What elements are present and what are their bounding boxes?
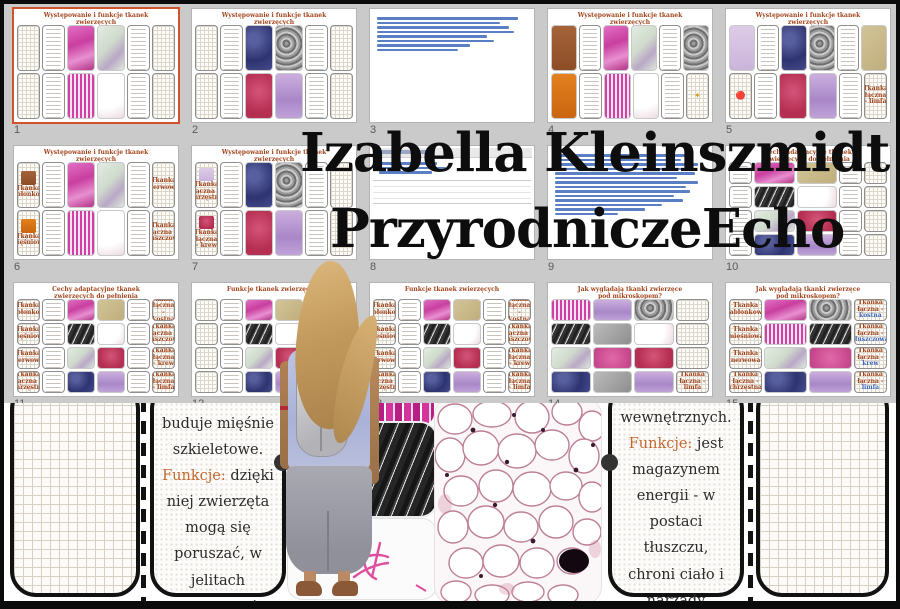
tissue-label: Tkanka łączna - limfa: [152, 372, 175, 392]
tissue-label-card: Tkanka nabłonkowa: [17, 162, 40, 208]
slide-thumbnail-14[interactable]: Jak wyglądają tkanki zwierzęce pod mikro…: [548, 283, 712, 396]
tissue-image-darkStriated: [551, 323, 591, 345]
tissue-image-blueCells: [245, 25, 273, 71]
tissue-image-adipose: [634, 323, 674, 345]
tissue-label-card: Tkanka łączna - chrzęstna: [729, 371, 762, 393]
hyperlink-line[interactable]: [555, 195, 674, 198]
tissue-label: Tkanka łączna - tłuszczowa: [508, 324, 531, 344]
slide-number: 10: [726, 261, 738, 273]
slide-thumbnail-15[interactable]: Jak wyglądają tkanki zwierzęce pod mikro…: [726, 283, 890, 396]
tissue-image-blood: [97, 347, 125, 369]
hyperlink-list: [373, 12, 531, 56]
text-card: [220, 73, 243, 119]
slide-title: Występowanie i funkcje tkanek zwierzęcyc…: [17, 12, 175, 25]
text-card: [220, 299, 243, 321]
tissue-image-paleNerve: [97, 162, 125, 208]
tissue-label: Tkanka łączna - krew: [855, 348, 886, 368]
hyperlink-line[interactable]: [377, 40, 494, 43]
tissue-image-blueCells: [67, 371, 95, 393]
hyperlink-line[interactable]: [555, 190, 690, 193]
tissue-image-adipose: [453, 323, 481, 345]
tissue-label: Tkanka łączna - krew: [508, 348, 531, 368]
slide-thumbnail-11[interactable]: Cechy adaptacyjne tkanek zwierzęcych do …: [14, 283, 178, 396]
grid-card: [17, 73, 40, 119]
text-card: [398, 371, 421, 393]
slide-thumbnail-2[interactable]: Występowanie i funkcje tkanek zwierzęcyc…: [192, 9, 356, 122]
tissue-label-card: Tkanka łączna - tłuszczowa: [854, 323, 887, 345]
tissue-label: Tkanka nerwowa: [152, 178, 175, 191]
tissue-image-darkStriated: [67, 323, 95, 345]
text-card: [42, 371, 65, 393]
tissue-image-pinkField: [593, 347, 633, 369]
tissue-label-card: Tkanka mięśniowa: [17, 210, 40, 256]
tissue-image-paleNerve: [423, 347, 451, 369]
tissue-image-tan: [861, 25, 887, 71]
grid-card-right: [756, 403, 889, 597]
tissue-image-graySpeck: [809, 25, 835, 71]
tissue-label-card: Tkanka nerwowa: [152, 162, 175, 208]
text-card-adipose: wewnętrznych. Funkcje: jest magazynem en…: [608, 403, 744, 597]
tissue-image-purpleEp: [97, 371, 125, 393]
text-card: [483, 323, 506, 345]
tissue-image-blood: [245, 73, 273, 119]
tissue-image-darkStriated: [423, 323, 451, 345]
slide-thumbnail-13[interactable]: Funkcje tkanek zwierzęcychTkanka nabłonk…: [370, 283, 534, 396]
text-card: [220, 162, 243, 208]
slide-title: Występowanie i funkcje tkanek zwierzęcyc…: [729, 12, 887, 25]
tissue-chip-brown: [21, 171, 36, 184]
hyperlink-line[interactable]: [377, 35, 487, 38]
text-card-muscle: buduje mięśnie szkieletowe. Funkcje: dzi…: [150, 403, 286, 597]
tissue-label-card: Tkanka mięśniowa: [17, 323, 40, 345]
tissue-label-card: Tkanka łączna - limfa: [864, 73, 887, 119]
text-card: [579, 73, 602, 119]
tissue-image-grayImg: [593, 323, 633, 345]
tissue-label-card: Tkanka nabłonkowa: [17, 299, 40, 321]
grid-card: [152, 73, 175, 119]
tissue-image-blueCells: [245, 371, 273, 393]
text-card: [127, 347, 150, 369]
tissue-label-card: Tkanka łączna - chrzęstna: [195, 162, 218, 208]
tissue-image-paleNerve: [67, 347, 95, 369]
text-card: [659, 25, 682, 71]
tissue-label-card: Tkanka łączna - limfa: [508, 371, 531, 393]
tissue-image-stripes: [551, 299, 591, 321]
tissue-label-card: Tkanka łączna - krew: [195, 210, 218, 256]
tissue-image-pinkMuscle: [245, 299, 273, 321]
tissue-image-graySpeck: [809, 299, 852, 321]
grid-card: [152, 25, 175, 71]
tissue-label-card: Tkanka łączna - tłuszczowa: [152, 323, 175, 345]
grid-card: [676, 323, 709, 345]
grid-card: [195, 347, 218, 369]
tissue-image-purpleEp: [809, 73, 837, 119]
adipose-tissue-micrograph: [435, 403, 601, 601]
tissue-label: Tkanka łączna - chrzęstna: [17, 372, 40, 392]
tissue-label-card: Tkanka łączna - kostna: [152, 299, 175, 321]
text-card: [398, 347, 421, 369]
text-card: [483, 371, 506, 393]
tissue-image-purpleEp: [809, 371, 852, 393]
text-card: [483, 347, 506, 369]
tissue-label: Tkanka łączna - krew: [195, 230, 218, 250]
grid-card: [864, 210, 887, 232]
tissue-image-blueCells: [551, 371, 591, 393]
text-card: [127, 210, 150, 256]
tissue-label: Tkanka łączna - tłuszczowa: [854, 324, 887, 344]
tissue-label: Tkanka mięśniowa: [729, 327, 762, 340]
hyperlink-line[interactable]: [377, 49, 458, 52]
slide-number: 1: [14, 124, 20, 136]
tissue-image-blood: [453, 347, 481, 369]
grid-card: [195, 299, 218, 321]
slide-number: 6: [14, 261, 20, 273]
tissue-image-brown: [551, 25, 577, 71]
person-pants: [286, 466, 372, 574]
tissue-image-graySpeck: [275, 25, 303, 71]
tissue-image-adipose: [97, 210, 125, 256]
text-card: [127, 323, 150, 345]
tissue-image-paleNerve: [764, 347, 807, 369]
tissue-image-purpleEp: [275, 73, 303, 119]
tissue-image-grayImg: [593, 371, 633, 393]
adipose-function-text: wewnętrznych. Funkcje: jest magazynem en…: [612, 403, 740, 601]
tissue-image-purpleEp: [593, 299, 633, 321]
tissue-label: Tkanka łączna - tłuszczowa: [152, 223, 175, 243]
slide-number: 9: [548, 261, 554, 273]
grid-card: [676, 347, 709, 369]
grid-card: [195, 25, 218, 71]
tissue-label-card: Tkanka łączna - krew: [854, 347, 887, 369]
tissue-image-paleNerve: [551, 347, 591, 369]
tissue-image-violetPale: [729, 25, 755, 71]
person-photo: [280, 261, 379, 603]
cut-line-right: [748, 403, 753, 601]
tissue-label: Tkanka łączna - limfa: [855, 372, 886, 392]
tissue-image-pinkMuscle: [67, 162, 95, 208]
tissue-image-blood: [634, 347, 674, 369]
tissue-label: Tkanka łączna - kostna: [152, 299, 175, 321]
text-card: [127, 371, 150, 393]
tissue-image-stripes: [67, 210, 95, 256]
slide-title: Występowanie i funkcje tkanek zwierzęcyc…: [195, 12, 353, 25]
text-card: [42, 210, 65, 256]
tissue-image-pinkField: [809, 347, 852, 369]
slide-thumbnail-4[interactable]: Występowanie i funkcje tkanek zwierzęcyc…: [548, 9, 712, 122]
slide-title: Występowanie i funkcje tkanek zwierzęcyc…: [551, 12, 709, 25]
tissue-label-card: Tkanka łączna - limfa: [854, 371, 887, 393]
text-card: [398, 323, 421, 345]
tissue-image-graySpeck: [634, 299, 674, 321]
grid-card: [17, 25, 40, 71]
slide-title: Jak wyglądają tkanki zwierzęce pod mikro…: [551, 286, 709, 299]
tissue-label-card: Tkanka łączna - limfa: [152, 371, 175, 393]
tissue-label: Tkanka łączna - tłuszczowa: [152, 324, 175, 344]
tissue-image-tan: [97, 299, 125, 321]
tissue-image-adipose: [97, 323, 125, 345]
tissue-label-card: Tkanka łączna - krew: [508, 347, 531, 369]
tissue-image-pinkMuscle: [764, 299, 807, 321]
tissue-image-blueCells: [764, 371, 807, 393]
text-card: [483, 299, 506, 321]
star-icon: ✦: [694, 92, 701, 100]
tissue-label-card: Tkanka łączna - kostna: [854, 299, 887, 321]
tissue-image-blood: [779, 73, 807, 119]
tissue-image-purpleEp: [275, 210, 303, 256]
tissue-label: Tkanka nabłonkowa: [729, 303, 762, 316]
text-card: [220, 323, 243, 345]
text-card: [305, 210, 328, 256]
text-card: [127, 25, 150, 71]
text-card: [305, 73, 328, 119]
slide-thumbnail-1[interactable]: Występowanie i funkcje tkanek zwierzęcyc…: [14, 9, 178, 122]
text-card: [661, 73, 684, 119]
tissue-image-stripes: [604, 73, 630, 119]
tissue-label: Tkanka nabłonkowa: [17, 186, 40, 199]
tissue-image-pinkMuscle: [603, 25, 629, 71]
tissue-label: Tkanka nabłonkowa: [17, 303, 40, 316]
hyperlink-line[interactable]: [377, 31, 514, 34]
tissue-label-card: Tkanka łączna - krew: [152, 347, 175, 369]
tissue-chip-blood: [199, 216, 214, 229]
tissue-image-orange: [551, 73, 577, 119]
text-card: [127, 299, 150, 321]
text-card: [42, 299, 65, 321]
tissue-label-card: Tkanka łączna - tłuszczowa: [152, 210, 175, 256]
tissue-image-darkStriated: [245, 323, 273, 345]
tissue-label: Tkanka łączna - chrzęstna: [195, 182, 218, 202]
text-card: [398, 299, 421, 321]
person-sandal: [296, 581, 322, 596]
tissue-label: Tkanka mięśniowa: [17, 234, 40, 247]
tissue-image-paleNerve: [97, 25, 125, 71]
tissue-label-card: Tkanka łączna - tłuszczowa: [508, 323, 531, 345]
text-card: [127, 73, 150, 119]
cut-line-left: [141, 403, 146, 601]
tissue-label: Tkanka łączna - limfa: [508, 372, 531, 392]
text-card: [757, 25, 780, 71]
collage-root: Występowanie i funkcje tkanek zwierzęcyc…: [0, 0, 900, 609]
watermark-title-line2: PrzyrodniczeEcho: [330, 203, 760, 256]
text-card: [42, 347, 65, 369]
text-card: [220, 210, 243, 256]
grid-card: [676, 299, 709, 321]
slide-title: Jak wyglądają tkanki zwierzęce pod mikro…: [729, 286, 887, 299]
tissue-label: Tkanka łączna - krew: [152, 348, 175, 368]
grid-card: [864, 234, 887, 256]
tissue-label-card: Tkanka łączna - limfa: [676, 371, 709, 393]
icon-card-star: ✦: [686, 73, 709, 119]
tissue-image-blood: [245, 210, 273, 256]
person-sandal: [332, 581, 358, 596]
slide-title: Cechy adaptacyjne tkanek zwierzęcych do …: [17, 286, 175, 299]
tissue-image-blueCells: [781, 25, 807, 71]
tissue-chip-orange: [21, 219, 36, 232]
tissue-label: Tkanka mięśniowa: [17, 327, 40, 340]
tissue-label: Tkanka nerwowa: [730, 351, 762, 364]
text-card: [127, 162, 150, 208]
hyperlink-line[interactable]: [377, 44, 470, 47]
tissue-label-card: Tkanka łączna - chrzęstna: [17, 371, 40, 393]
tissue-chip-violetPale: [199, 168, 214, 181]
text-card: [42, 25, 65, 71]
slide-detail-pane: buduje mięśnie szkieletowe. Funkcje: dzi…: [4, 403, 896, 601]
tissue-image-graySpeck: [683, 25, 709, 71]
grid-card: [330, 73, 353, 119]
hyperlink-line[interactable]: [377, 17, 518, 20]
tissue-image-stripes: [67, 73, 95, 119]
tissue-image-paleNerve: [631, 25, 657, 71]
tissue-image-darkStriated: [809, 323, 852, 345]
tissue-label-card: Tkanka mięśniowa: [729, 323, 762, 345]
tissue-label-card: Tkanka nabłonkowa: [729, 299, 762, 321]
text-card: [220, 25, 243, 71]
tissue-label-card: Tkanka nerwowa: [17, 347, 40, 369]
tissue-image-blueCells: [423, 371, 451, 393]
tissue-image-stripes: [764, 323, 807, 345]
tissue-label: Tkanka łączna - limfa: [864, 86, 887, 106]
tissue-label: Tkanka łączna - limfa: [677, 372, 708, 392]
tissue-image-purpleEp: [634, 371, 674, 393]
slide-number: 7: [192, 261, 198, 273]
tissue-label: Tkanka łączna - kostna: [855, 300, 886, 320]
hyperlink-line[interactable]: [377, 26, 509, 29]
grid-card: [195, 371, 218, 393]
slide-thumbnail-5[interactable]: Występowanie i funkcje tkanek zwierzęcyc…: [726, 9, 890, 122]
tissue-image-paleNerve: [245, 347, 273, 369]
hyperlink-line[interactable]: [377, 22, 500, 25]
grid-card: [864, 186, 887, 208]
grid-card: [330, 25, 353, 71]
grid-card-left: [10, 403, 140, 597]
tissue-label: Tkanka nerwowa: [17, 351, 40, 364]
hyperlink-line[interactable]: [555, 186, 686, 189]
slide-thumbnail-3[interactable]: [370, 9, 534, 122]
tissue-label-card: Tkanka łączna - kostna: [508, 299, 531, 321]
tissue-label: Tkanka łączna - kostna: [508, 299, 531, 321]
tissue-image-purpleEp: [453, 371, 481, 393]
slide-title: Występowanie i funkcje tkanek zwierzęcyc…: [17, 149, 175, 162]
tissue-image-adipose: [97, 73, 125, 119]
connector-dot-right: [601, 454, 618, 471]
watermark-title-line1: Izabella Kleinszmidt –: [300, 127, 870, 180]
text-card: [220, 347, 243, 369]
text-card: [305, 25, 328, 71]
tissue-label: Tkanka łączna - chrzęstna: [729, 372, 762, 392]
tissue-label-card: Tkanka nerwowa: [729, 347, 762, 369]
slide-thumbnail-6[interactable]: Występowanie i funkcje tkanek zwierzęcyc…: [14, 146, 178, 259]
tissue-image-blueCells: [245, 162, 273, 208]
redCell-icon: 🔴: [735, 92, 745, 100]
tissue-image-pinkMuscle: [67, 299, 95, 321]
text-card: [220, 371, 243, 393]
pants-crease: [327, 511, 329, 571]
text-card: [42, 323, 65, 345]
text-card: [754, 73, 777, 119]
slide-title: Funkcje tkanek zwierzęcych: [373, 286, 531, 299]
text-card: [579, 25, 602, 71]
muscle-function-text: buduje mięśnie szkieletowe. Funkcje: dzi…: [154, 403, 282, 601]
tissue-image-tan: [453, 299, 481, 321]
text-card: [42, 162, 65, 208]
slide-number: 2: [192, 124, 198, 136]
text-card: [42, 73, 65, 119]
tissue-image-pinkMuscle: [423, 299, 451, 321]
tissue-image-pinkMuscle: [67, 25, 95, 71]
text-card: [837, 25, 860, 71]
tissue-image-adipose: [633, 73, 659, 119]
grid-card: [195, 323, 218, 345]
text-card: [839, 73, 862, 119]
icon-card-redCell: 🔴: [729, 73, 752, 119]
grid-card: [195, 73, 218, 119]
tissue-image-graySpeck: [275, 162, 303, 208]
